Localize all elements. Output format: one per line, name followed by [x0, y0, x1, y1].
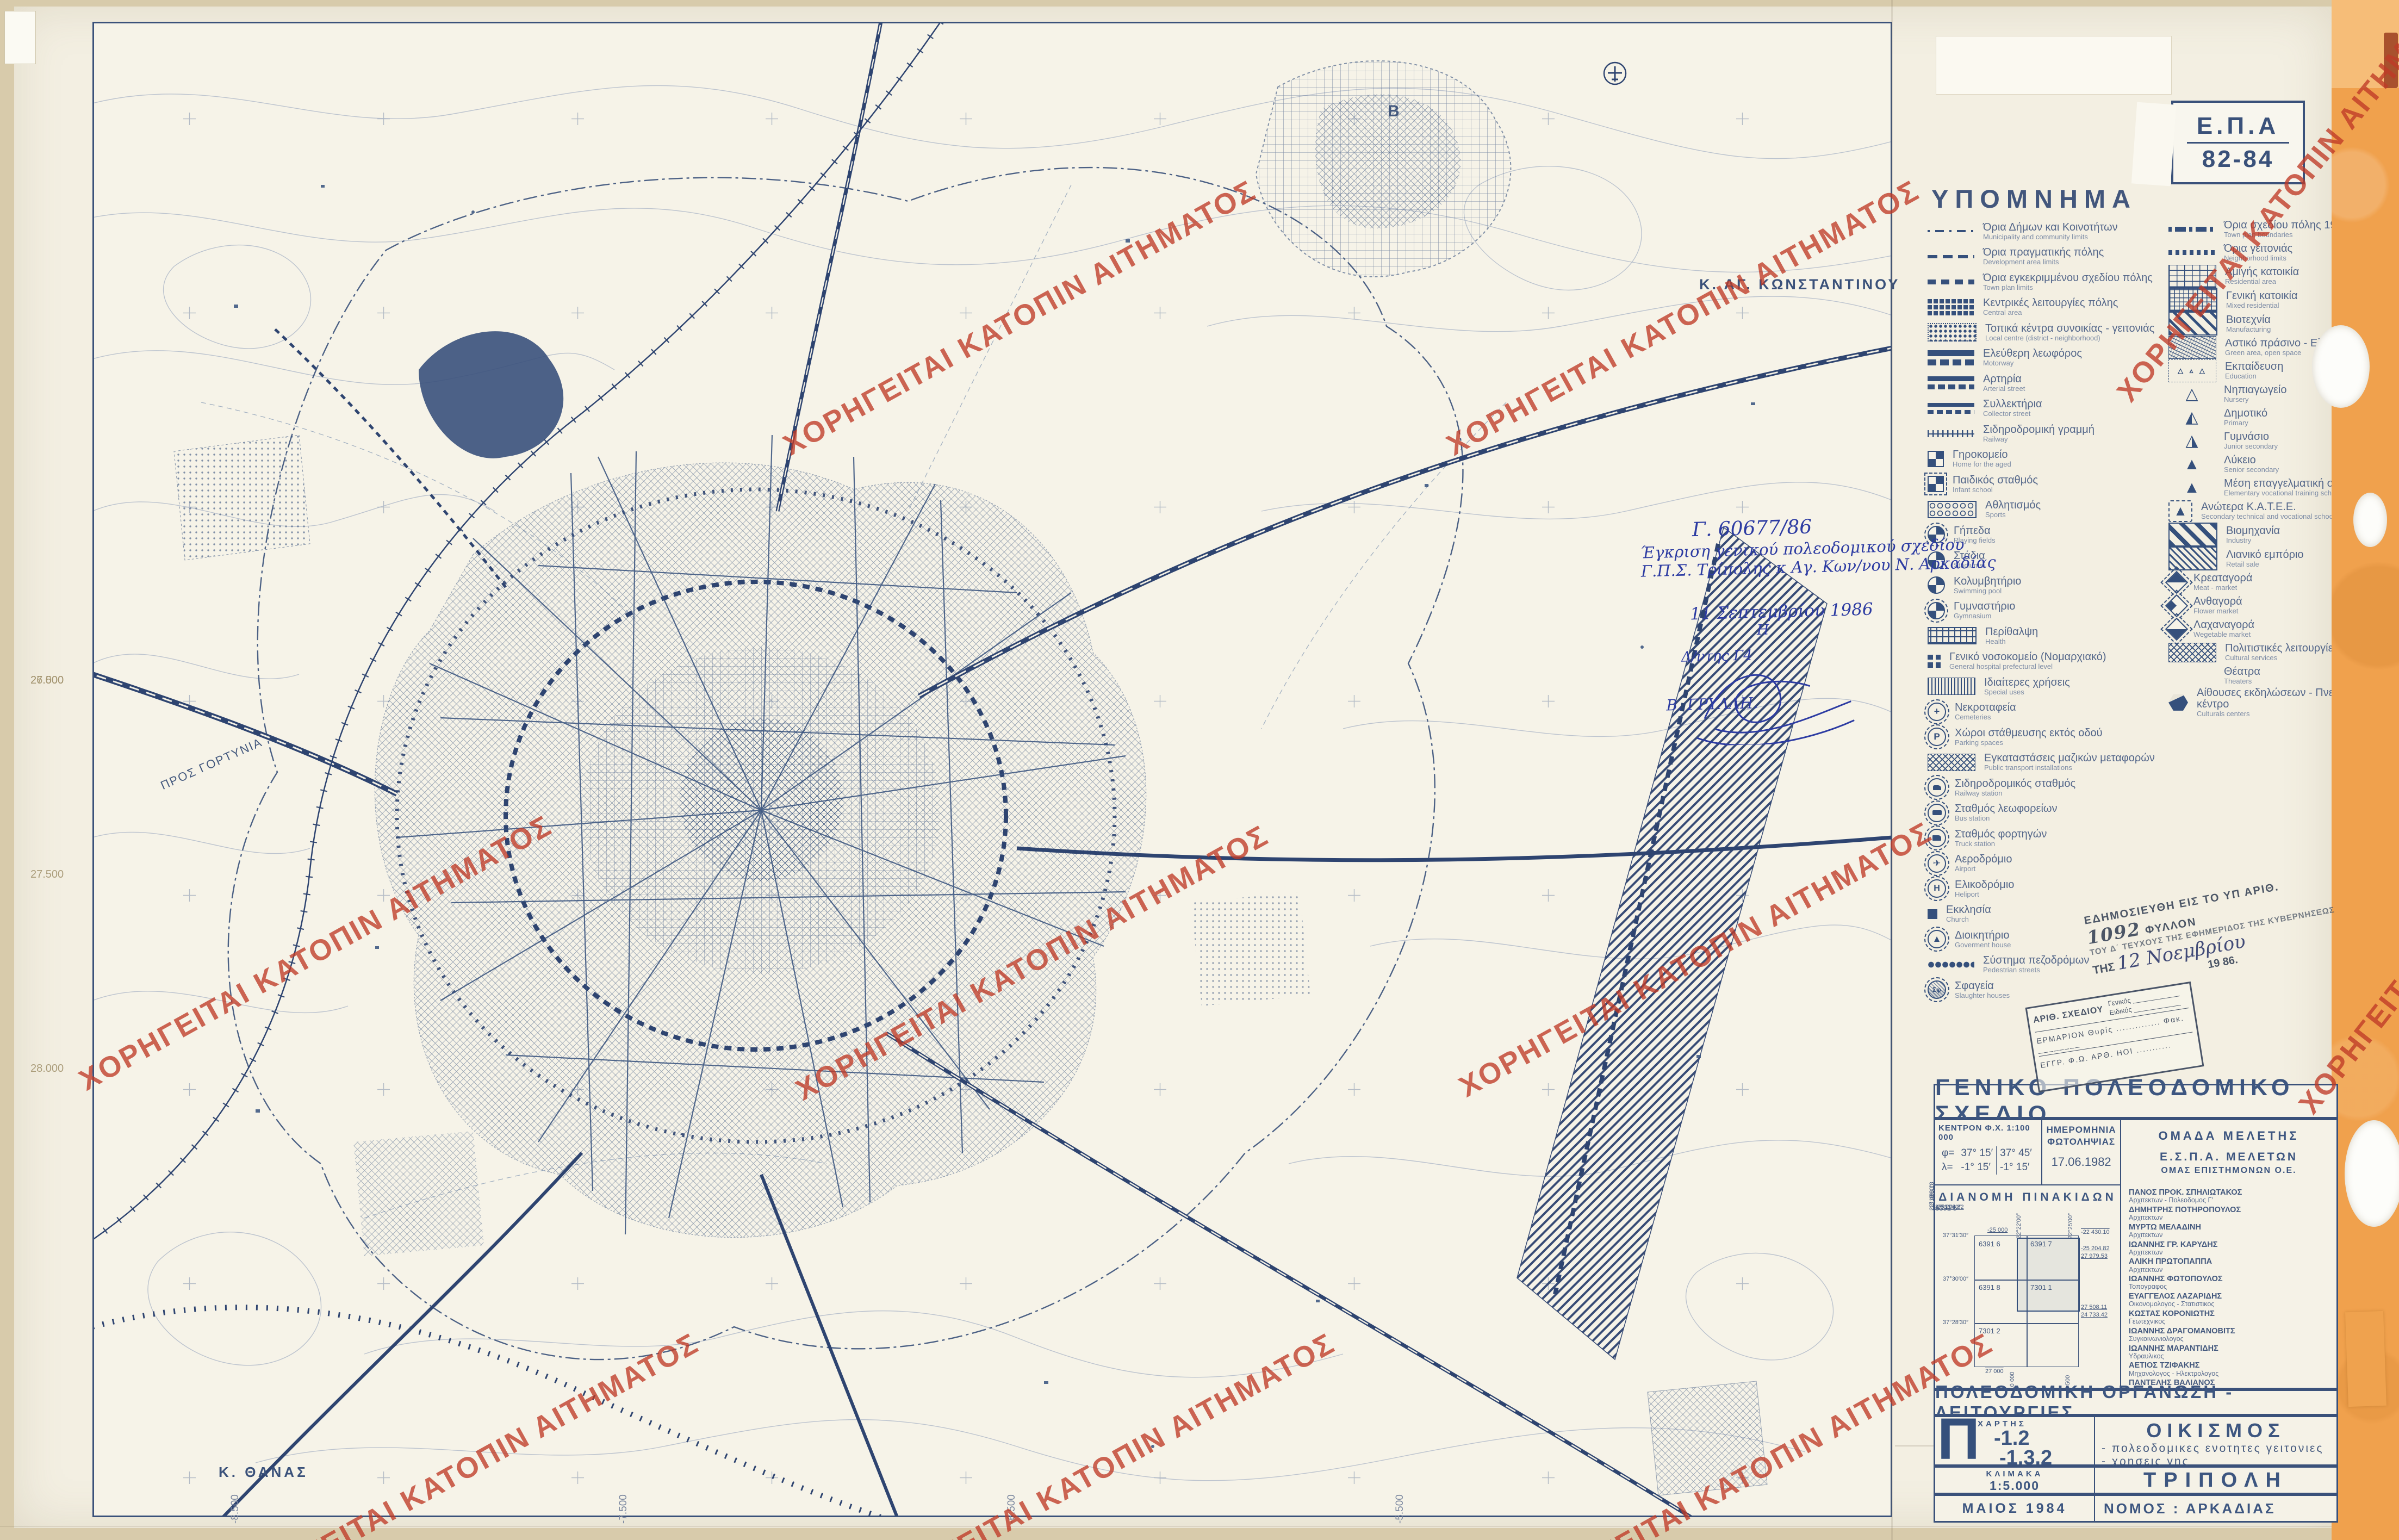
grid-label: 28.000	[30, 1063, 64, 1075]
legend-row: Κεντρικές λειτουργίες πόλης Central area	[1928, 295, 2171, 320]
legend-label-greek: Όρια πραγματικής πόλης	[1983, 247, 2104, 258]
legend-label-greek: Βιομηχανία	[2226, 525, 2280, 537]
legend-label-greek: Αρτηρία	[1983, 374, 2025, 385]
legend-label-english: Retail sale	[2226, 561, 2304, 568]
legend-label-english: Collector street	[1983, 410, 2042, 418]
approval-note: Γ. 60677/86 Έγκριση γενικού πολεοδομικού…	[1639, 511, 2003, 715]
punch-hole	[2353, 493, 2387, 547]
city-name: ΤΡΙΠΟΛΗ	[2095, 1468, 2336, 1493]
map-number-cell: ΧΑΡΤΗΣ Π -1.2 -1.3.2	[1935, 1417, 2095, 1464]
legend-label-english: Central area	[1983, 309, 2118, 316]
grid-label: -7.500	[618, 1494, 630, 1524]
legend-row: H Ελικοδρόμιο Heliport	[1928, 876, 2171, 902]
legend-label-greek: Σταθμός λεωφορείων	[1955, 803, 2058, 815]
grid-label: -8.500	[229, 1494, 241, 1524]
legend-label-english: Slaughter houses	[1955, 992, 2010, 999]
team-member: ΚΩΣΤΑΣ ΚΟΡΟΝΙΩΤΗΣ Γεωτεχνικος	[2129, 1310, 2329, 1325]
team-member: ΜΥΡΤΩ ΜΕΛΑΔΙΝΗ Αρχιτεκτων	[2129, 1224, 2329, 1239]
legend-symbol-icon: ◮	[2168, 431, 2215, 451]
legend-symbol-icon	[1928, 476, 1944, 492]
fold-crease	[0, 1526, 2399, 1527]
legend-label-greek: Τοπικά κέντρα συνοικίας - γειτονιάς	[1985, 323, 2154, 334]
signature-scribble	[1687, 649, 1863, 746]
grid-label: 27.500	[30, 868, 64, 881]
subject-cell: ΟΙΚΙΣΜΟΣ - πολεοδομικες ενοτητες γειτονι…	[2095, 1417, 2336, 1464]
binder-mark	[2384, 33, 2398, 88]
legend-label-greek: Αθλητισμός	[1985, 500, 2041, 511]
legend-label-english: Flower market	[2193, 607, 2242, 615]
legend-label-english: Primary	[2224, 419, 2267, 427]
legend-label-greek: Βιοτεχνία	[2226, 314, 2271, 326]
team-member: ΑΛΙΚΗ ΠΡΩΤΟΠΑΠΠΑ Αρχιτεκτων	[2129, 1258, 2329, 1273]
legend-symbol-icon: △	[2168, 384, 2215, 404]
legend-label-english: Local centre (district - neighborhood)	[1985, 334, 2154, 342]
legend-symbol-icon	[1928, 230, 1974, 232]
legend-label-greek: Όρια Δήμων και Κοινοτήτων	[1983, 222, 2118, 233]
legend-row: Παιδικός σταθμός Infant school	[1928, 471, 2171, 497]
legend-symbol-icon: Σφ	[1928, 980, 1946, 999]
legend-row: Τοπικά κέντρα συνοικίας - γειτονιάς Loca…	[1928, 320, 2171, 345]
legend-label-greek: Εκπαίδευση	[2225, 361, 2283, 372]
legend-row: Εγκαταστάσεις μαζικών μεταφορών Public t…	[1928, 750, 2171, 775]
legend-label-english: Industry	[2226, 537, 2280, 544]
epa-years: 82-84	[2202, 144, 2274, 173]
binder-tab	[2345, 1311, 2386, 1407]
punch-hole	[2312, 325, 2370, 408]
legend-symbol-icon	[1928, 961, 1974, 968]
legend-label-english: Secondary technical and vocational schoo…	[2201, 513, 2335, 520]
legend-row: Όρια πραγματικής πόλης Development area …	[1928, 244, 2171, 270]
correction-smudge	[2131, 102, 2176, 187]
legend-label-greek: Κρεαταγορά	[2193, 573, 2252, 584]
legend-label-greek: Σύστημα πεζοδρόμων	[1983, 955, 2089, 966]
legend-label-english: Theaters	[2224, 678, 2260, 685]
legend-symbol-icon	[2168, 227, 2215, 232]
legend-label-english: Senior secondary	[2224, 466, 2279, 474]
legend-row: Γηροκομείο Home for the aged	[1928, 446, 2171, 472]
legend-label-greek: Όρια σχεδίου πόλης 1987	[2224, 220, 2348, 231]
legend-label-greek: Ελικοδρόμιο	[1955, 879, 2014, 891]
legend-label-greek: Ανώτερα Κ.Α.Τ.Ε.Ε.	[2201, 501, 2335, 513]
legend-label-english: Junior secondary	[2224, 443, 2278, 450]
legend-symbol-icon	[1928, 451, 1944, 467]
legend-symbol-icon	[1928, 403, 1974, 414]
legend-label-greek: Σταθμός φορτηγών	[1955, 829, 2047, 840]
legend-label-greek: Κεντρικές λειτουργίες πόλης	[1983, 297, 2118, 309]
legend-row: Σιδηροδρομική γραμμή Railway	[1928, 421, 2171, 446]
date-prefecture-row: ΜΑΙΟΣ 1984 ΝΟΜΟΣ : ΑΡΚΑΔΙΑΣ	[1934, 1494, 2338, 1523]
legend-symbol-icon	[1928, 280, 1974, 284]
legend-row: Αρτηρία Arterial street	[1928, 370, 2171, 396]
fold-crease	[1891, 0, 1893, 1540]
legend-symbol-icon	[1928, 255, 1974, 258]
map-label-b: B	[1388, 102, 1400, 121]
legend-label-english: Neighborhood limits	[2224, 254, 2292, 262]
legend-label-greek: Θέατρα	[2224, 666, 2260, 678]
legend-label-greek: Παιδικός σταθμός	[1953, 475, 2038, 486]
legend-symbol-icon	[2168, 250, 2215, 255]
legend-label-english: Railway	[1983, 436, 2095, 443]
prefecture: ΝΟΜΟΣ : ΑΡΚΑΔΙΑΣ	[2095, 1496, 2336, 1521]
legend-symbol-icon	[1928, 778, 1946, 797]
legend-label-greek: Όρια γειτονιάς	[2224, 243, 2292, 254]
legend-label-greek: Λιανικό εμπόριο	[2226, 549, 2304, 561]
legend-label-greek: Γενική κατοικία	[2226, 290, 2298, 302]
legend-row: P Χώροι στάθμευσης εκτός οδού Parking sp…	[1928, 724, 2171, 750]
team-member: ΔΗΜΗΤΡΗΣ ΠΟΤΗΡΟΠΟΥΛΟΣ Αρχιτεκτων	[2129, 1206, 2329, 1221]
legend-label-english: Education	[2225, 372, 2283, 380]
team-member: ΑΕΤΙΟΣ ΤΖΙΦΑΚΗΣ Μηχανολογος - Ηλεκτρολογ…	[2129, 1362, 2329, 1377]
legend-label-greek: Πολιτιστικές λειτουργίες	[2225, 643, 2338, 654]
legend-row: Όρια εγκεκριμμένου σχεδίου πόλης Town pl…	[1928, 269, 2171, 295]
grid-label: -5.500	[1394, 1494, 1406, 1524]
legend-symbol-icon	[1928, 350, 1974, 365]
legend-symbol-icon	[1928, 299, 1974, 315]
legend-label-english: Meat - market	[2193, 584, 2252, 592]
legend-label-english: Pedestrian streets	[1983, 966, 2089, 974]
legend-label-english: Heliport	[1955, 891, 2014, 898]
legend-label-english: Town plan limits	[1983, 284, 2153, 291]
legend-label-greek: Σιδηροδρομικός σταθμός	[1955, 778, 2075, 790]
legend-symbol-icon	[1928, 376, 1974, 389]
legend-label-greek: Όρια εγκεκριμμένου σχεδίου πόλης	[1983, 272, 2153, 284]
legend-label-english: Nursery	[2224, 396, 2286, 403]
team-member: ΕΥΑΓΓΕΛΟΣ ΛΑΖΑΡΙΔΗΣ Οικονομολογος - Στατ…	[2129, 1293, 2329, 1308]
legend-label-greek: Αμιγής κατοικία	[2225, 266, 2299, 278]
issue-date: ΜΑΙΟΣ 1984	[1935, 1496, 2095, 1521]
legend-label-greek: Εκκλησία	[1946, 904, 1991, 916]
punch-hole	[2345, 1120, 2399, 1227]
legend-label-english: Residential area	[2225, 278, 2299, 285]
legend-symbol-icon: △ ▵ △	[2168, 359, 2216, 382]
legend-row: Όρια Δήμων και Κοινοτήτων Municipality a…	[1928, 219, 2171, 244]
team-member: ΙΩΑΝΝΗΣ ΦΩΤΟΠΟΥΛΟΣ Τοπογραφος	[2129, 1275, 2329, 1290]
legend-label-english: Bus station	[1955, 815, 2058, 822]
epa-index-box: Ε.Π.Α 82-84	[2171, 101, 2305, 184]
legend-label-greek: Λύκειο	[2224, 455, 2279, 466]
legend-label-english: Municipality and community limits	[1983, 233, 2118, 241]
pi-symbol: Π	[1937, 1417, 1980, 1464]
legend-label-english: Truck station	[1955, 840, 2047, 848]
legend-symbol-icon: ▲	[1928, 930, 1946, 948]
legend-label-greek: Χώροι στάθμευσης εκτός οδού	[1955, 728, 2103, 739]
legend-symbol-icon	[1928, 754, 1975, 771]
legend-label-english: Church	[1946, 916, 1991, 923]
sheet-index-diagram: ΔΙΑΝΟΜΗ ΠΙΝΑΚΙΔΩΝ 6391 56391 66391 76391…	[1935, 1185, 2120, 1388]
legend-label-greek: Νηπιαγωγείο	[2224, 384, 2286, 396]
legend-label-greek: Ανθαγορά	[2193, 596, 2242, 607]
map-number-row: ΧΑΡΤΗΣ Π -1.2 -1.3.2 ΟΙΚΙΣΜΟΣ - πολεοδομ…	[1934, 1415, 2338, 1466]
legend-symbol-icon	[1928, 829, 1946, 847]
legend-label-english: Arterial street	[1983, 385, 2025, 393]
legend-symbol-icon: H	[1928, 879, 1946, 898]
legend-label-greek: Συλλεκτήρια	[1983, 399, 2042, 410]
study-team-cell: ΟΜΑΔΑ ΜΕΛΕΤΗΣ Ε.Σ.Π.Α. ΜΕΛΕΤΩΝ ΟΜΑΣ ΕΠΙΣ…	[2121, 1120, 2336, 1388]
legend-symbol-icon	[2168, 288, 2217, 312]
title-block: ΓΕΝΙΚΟ ΠΟΛΕΟΔΟΜΙΚΟ ΣΧΕΔΙΟ ΚΕΝΤΡΟΝ Φ.Χ. 1…	[1934, 1084, 2338, 1523]
photo-date: 17.06.1982	[2042, 1155, 2120, 1169]
legend-label-english: Infant school	[1953, 486, 2038, 494]
corner-tab	[4, 11, 36, 64]
grid-labels-bottom: -9.500-8.500-7.500-6.500-5.500	[0, 1453, 1892, 1529]
legend-label-greek: Λαχαναγορά	[2193, 619, 2254, 631]
legend-symbol-icon	[2168, 312, 2217, 336]
legend-label-english: Parking spaces	[1955, 739, 2103, 747]
legend-symbol-icon: ▲	[2168, 455, 2215, 474]
legend-label-greek: Σφαγεία	[1955, 980, 2010, 992]
legend-symbol-icon	[1928, 323, 1977, 341]
binder-strip	[2332, 0, 2399, 1540]
legend-row: Συλλεκτήρια Collector street	[1928, 396, 2171, 421]
legend-label-greek: Γυμνάσιο	[2224, 431, 2278, 443]
legend-row: Σιδηροδρομικός σταθμός Railway station	[1928, 775, 2171, 800]
legend-symbol-icon	[2168, 265, 2216, 288]
team-member-list: ΠΑΝΟΣ ΠΡΟΚ. ΣΠΗΛΙΩΤΑΚΟΣ Αρχιτεκτων - Πολ…	[2129, 1189, 2329, 1414]
legend-symbol-icon	[1928, 909, 1937, 919]
section-title: ΠΟΛΕΟΔΟΜΙΚΗ ΟΡΓΑΝΩΣΗ - ΛΕΙΤΟΥΡΓΙΕΣ	[1934, 1389, 2338, 1415]
map-drawing	[92, 22, 1892, 1517]
legend-label-english: Development area limits	[1983, 258, 2104, 266]
team-member: ΙΩΑΝΝΗΣ ΓΡ. ΚΑΡΥΔΗΣ Αρχιτεκτων	[2129, 1241, 2329, 1256]
legend-label-english: Cultural services	[2225, 654, 2338, 662]
legend-symbol-icon	[2168, 547, 2217, 570]
map-label-ag-konstantinou: Κ. ΑΓ. ΚΩΝΣΤΑΝΤΙΝΟΥ	[1699, 276, 1900, 293]
scanned-map-sheet: Κ. ΑΓ. ΚΩΝΣΤΑΝΤΙΝΟΥ Κ. ΘΑΝΑΣ ΠΡΟΣ ΓΟΡΤΥΝ…	[0, 0, 2399, 1540]
legend-label-english: Motorway	[1983, 359, 2082, 367]
legend-symbol-icon	[2168, 666, 2215, 686]
legend-label-greek: Εγκαταστάσεις μαζικών μεταφορών	[1984, 753, 2155, 764]
legend-symbol-icon	[2168, 694, 2188, 711]
legend-label-english: Mixed residential	[2226, 302, 2298, 309]
legend-row: Σταθμός λεωφορείων Bus station	[1928, 800, 2171, 826]
map-area: Κ. ΑΓ. ΚΩΝΣΤΑΝΤΙΝΟΥ Κ. ΘΑΝΑΣ ΠΡΟΣ ΓΟΡΤΥΝ…	[92, 22, 1892, 1517]
legend-label-english: Manufacturing	[2226, 326, 2271, 333]
legend-symbol-icon: ✈	[1928, 854, 1946, 873]
legend-symbol-icon: ▲	[2168, 500, 2192, 522]
legend-label-english: Goverment house	[1955, 941, 2011, 949]
sheet-extent	[2017, 1238, 2080, 1312]
team-member: ΠΑΝΟΣ ΠΡΟΚ. ΣΠΗΛΙΩΤΑΚΟΣ Αρχιτεκτων - Πολ…	[2129, 1189, 2329, 1204]
legend-symbol-icon: ◭	[2168, 408, 2215, 427]
legend-row: Σταθμός φορτηγών Truck station	[1928, 825, 2171, 851]
legend-symbol-icon: ▲	[2168, 478, 2215, 498]
map-center-cell: ΚΕΝΤΡΟΝ Φ.Χ. 1:100 000 φ= 37° 15′ 37° 45…	[1935, 1120, 2042, 1184]
legend-label-english: Airport	[1955, 865, 2012, 873]
epa-code: Ε.Π.Α	[2187, 113, 2289, 144]
legend-symbol-icon	[2168, 523, 2217, 547]
legend-label-english: Town plan boundaries	[2224, 231, 2348, 239]
white-label-patch	[1936, 36, 2172, 95]
scale-value: 1:5.000	[1935, 1479, 2094, 1493]
team-member: ΙΩΑΝΝΗΣ ΜΑΡΑΝΤΙΔΗΣ Υδραυλικος	[2129, 1345, 2329, 1360]
legend-row: ✈ Αεροδρόμιο Airport	[1928, 851, 2171, 877]
legend-symbol-icon	[2168, 336, 2216, 359]
legend-label-greek: Γηροκομείο	[1953, 449, 2011, 461]
legend-label-greek: Διοικητήριο	[1955, 930, 2011, 941]
legend-row: Ελεύθερη λεωφόρος Motorway	[1928, 345, 2171, 371]
legend-label-greek: Σιδηροδρομική γραμμή	[1983, 424, 2095, 436]
scale-cell: ΚΛΙΜΑΚΑ 1:5.000	[1935, 1468, 2095, 1493]
photo-date-cell: ΗΜΕΡΟΜΗΝΙΑ ΦΩΤΟΛΗΨΙΑΣ 17.06.1982	[2042, 1120, 2120, 1184]
title-block-upper: ΚΕΝΤΡΟΝ Φ.Χ. 1:100 000 φ= 37° 15′ 37° 45…	[1934, 1119, 2338, 1389]
grid-label: 27.000	[30, 674, 64, 687]
team-member: ΙΩΑΝΝΗΣ ΔΡΑΓΟΜΑΝΟΒΙΤΣ Συγκοινωνιολογος	[2129, 1327, 2329, 1343]
legend-label-greek: Ελεύθερη λεωφόρος	[1983, 348, 2082, 359]
legend-symbol-icon	[1928, 804, 1946, 822]
legend-label-greek: Αεροδρόμιο	[1955, 854, 2012, 865]
title-block-header: ΓΕΝΙΚΟ ΠΟΛΕΟΔΟΜΙΚΟ ΣΧΕΔΙΟ	[1934, 1084, 2338, 1119]
grid-label: -6.500	[1006, 1494, 1018, 1524]
legend-title: ΥΠΟΜΝΗΜΑ	[1931, 184, 2137, 214]
legend-label-english: Cemeteries	[1955, 713, 2016, 721]
legend-symbol-icon: P	[1928, 728, 1946, 746]
legend-symbol-icon	[2168, 643, 2216, 662]
legend-symbol-icon	[1928, 430, 1974, 437]
legend-label-english: Public transport installations	[1984, 764, 2155, 772]
legend-label-english: Wegetable market	[2193, 631, 2254, 638]
legend-label-greek: Δημοτικό	[2224, 408, 2267, 419]
legend-label-english: Home for the aged	[1953, 461, 2011, 468]
scale-city-row: ΚΛΙΜΑΚΑ 1:5.000 ΤΡΙΠΟΛΗ	[1934, 1466, 2338, 1494]
legend-label-english: Railway station	[1955, 790, 2075, 797]
